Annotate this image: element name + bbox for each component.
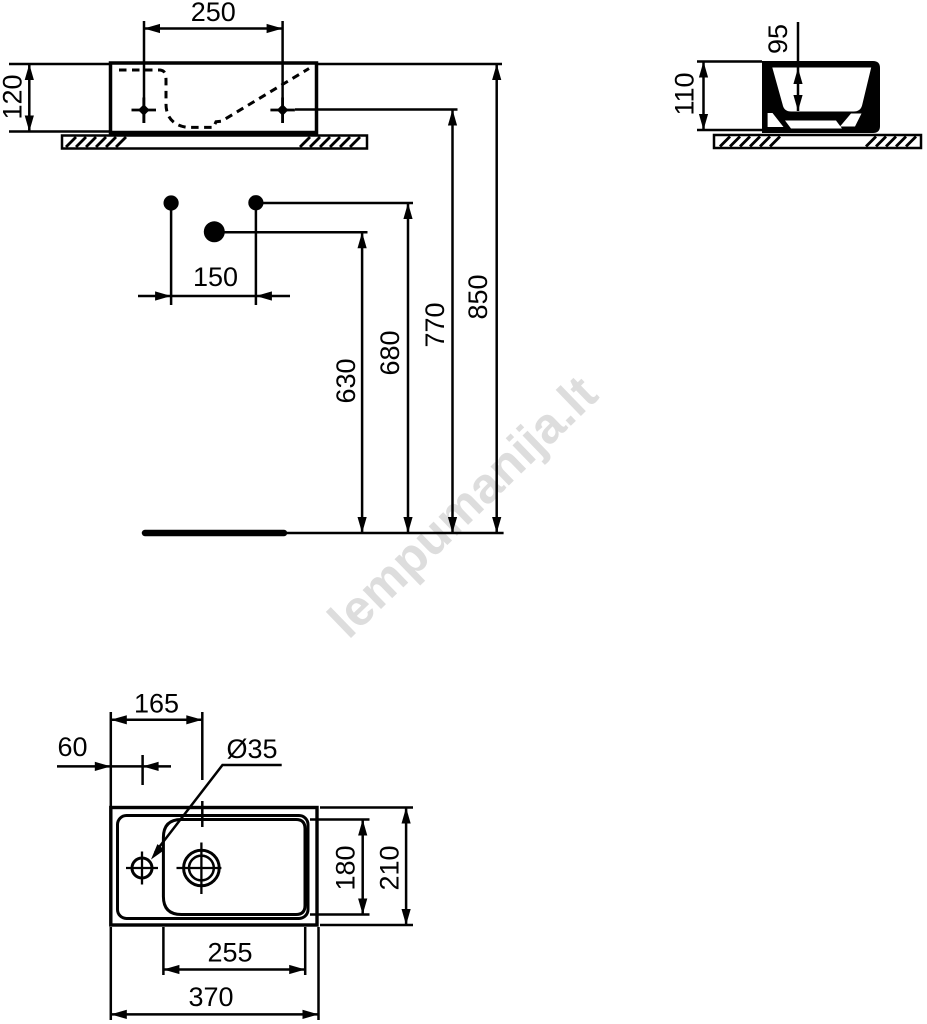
svg-text:95: 95 <box>763 24 793 54</box>
svg-text:60: 60 <box>57 732 87 762</box>
svg-text:680: 680 <box>375 330 405 375</box>
svg-text:770: 770 <box>420 302 450 347</box>
svg-text:255: 255 <box>207 938 252 968</box>
svg-text:110: 110 <box>670 72 700 115</box>
svg-text:120: 120 <box>0 74 28 119</box>
svg-text:180: 180 <box>331 845 361 890</box>
svg-text:Ø35: Ø35 <box>226 734 277 764</box>
svg-text:150: 150 <box>193 262 238 292</box>
svg-text:850: 850 <box>463 274 493 319</box>
svg-text:630: 630 <box>331 358 361 403</box>
svg-text:250: 250 <box>191 0 236 27</box>
svg-text:165: 165 <box>134 689 179 719</box>
svg-text:210: 210 <box>375 845 405 890</box>
svg-text:370: 370 <box>188 982 233 1012</box>
